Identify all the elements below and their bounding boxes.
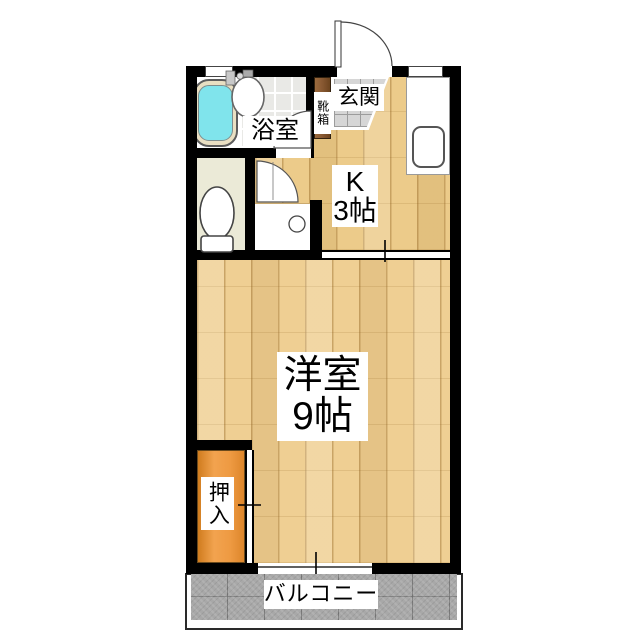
kitchen-label-size: 3帖 bbox=[333, 196, 377, 225]
wall-toilet-right bbox=[245, 158, 255, 250]
wall-bathroom-right bbox=[306, 77, 314, 148]
entrance-label-text: 玄関 bbox=[338, 87, 380, 109]
entrance-door-arc bbox=[341, 22, 392, 66]
bathtub-water bbox=[198, 85, 233, 141]
sliding-door-kitchen-room bbox=[322, 250, 450, 260]
sliding-door-closet bbox=[245, 450, 254, 563]
window-bathroom bbox=[205, 66, 233, 77]
balcony-label: バルコニー bbox=[264, 580, 378, 609]
entrance-door-opening bbox=[337, 66, 392, 77]
wall-closet-top bbox=[186, 440, 252, 450]
closet-label-text: 押入 bbox=[207, 481, 229, 527]
balcony-label-text: バルコニー bbox=[264, 583, 379, 606]
toilet-room-floor bbox=[197, 158, 245, 250]
shoe-cabinet-label-text: 靴箱 bbox=[316, 100, 328, 126]
shoe-cabinet-label: 靴箱 bbox=[314, 92, 331, 134]
entrance-label: 玄関 bbox=[334, 84, 384, 111]
kitchen-label-name: K bbox=[346, 167, 365, 196]
wall-left bbox=[186, 66, 197, 574]
closet-label: 押入 bbox=[201, 477, 234, 530]
balcony-door-opening bbox=[258, 563, 372, 574]
entrance-door-leaf bbox=[335, 21, 341, 67]
wall-kitchen-room-divider bbox=[186, 250, 322, 260]
kitchen-sink bbox=[412, 126, 445, 168]
wall-washer-right bbox=[310, 200, 322, 250]
floorplan-canvas: 浴室 玄関 靴箱 K 3帖 洋室 9帖 押入 バルコニー bbox=[0, 0, 640, 640]
bathroom-label: 浴室 bbox=[243, 116, 307, 146]
wall-right bbox=[450, 66, 461, 574]
western-room-label: 洋室 9帖 bbox=[277, 352, 368, 441]
washing-machine-pan bbox=[254, 203, 310, 250]
window-kitchen bbox=[408, 66, 443, 77]
bathroom-door-opening bbox=[276, 148, 311, 158]
bathroom-label-text: 浴室 bbox=[251, 119, 299, 144]
kitchen-label: K 3帖 bbox=[332, 165, 378, 227]
western-room-label-size: 9帖 bbox=[292, 397, 353, 438]
western-room-label-name: 洋室 bbox=[283, 356, 361, 397]
